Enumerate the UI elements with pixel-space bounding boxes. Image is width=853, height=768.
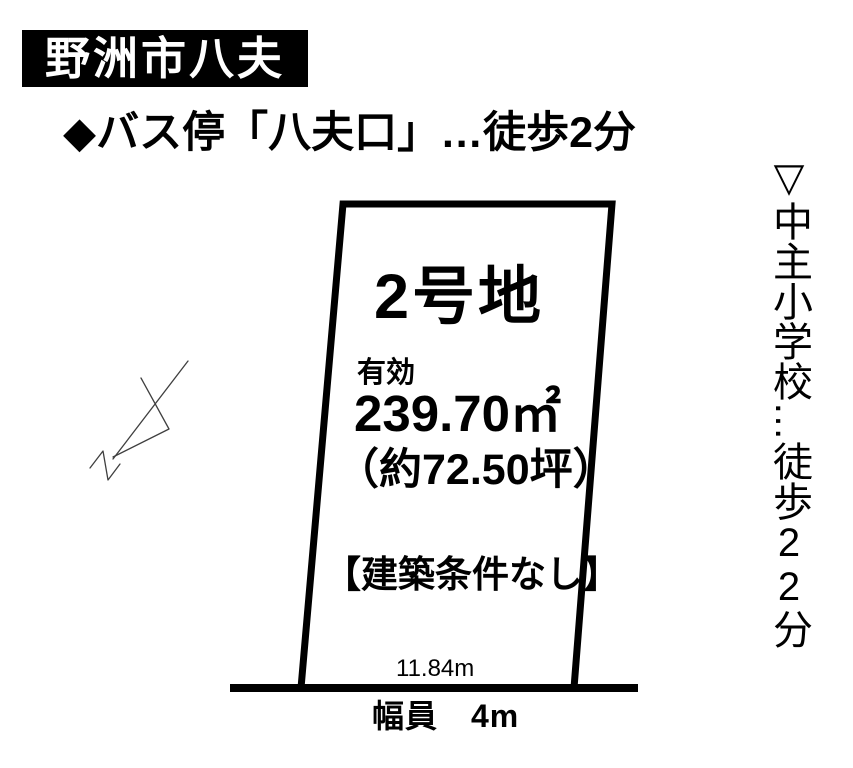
area-tsubo: （約72.50坪） bbox=[336, 449, 616, 492]
area-title: 野洲市八夫 bbox=[45, 36, 285, 81]
school-note-text: ▽中主小学校 bbox=[767, 155, 811, 401]
sketch-arrow-icon bbox=[90, 361, 188, 480]
school-access-note: ▽中主小学校…徒歩22分 bbox=[769, 155, 809, 665]
bus-access-note: ◆バス停「八夫口」…徒歩2分 bbox=[63, 110, 636, 157]
effective-area-label: 有効 bbox=[357, 359, 415, 388]
building-condition-note: 【建築条件なし】 bbox=[324, 556, 620, 593]
plot-name: 2号地 bbox=[374, 266, 544, 329]
school-note-walk: 徒歩22分 bbox=[767, 441, 811, 649]
school-note-ellipsis: … bbox=[767, 401, 811, 441]
frontage-dimension: 11.84m bbox=[396, 657, 474, 681]
area-square-meters: 239.70㎡ bbox=[354, 388, 561, 439]
area-title-banner: 野洲市八夫 bbox=[22, 30, 308, 87]
land-plot-diagram: 野洲市八夫 ◆バス停「八夫口」…徒歩2分 ▽中主小学校…徒歩22分 2号地 有効… bbox=[0, 0, 853, 768]
road-width-label: 幅員 4m bbox=[372, 700, 519, 732]
